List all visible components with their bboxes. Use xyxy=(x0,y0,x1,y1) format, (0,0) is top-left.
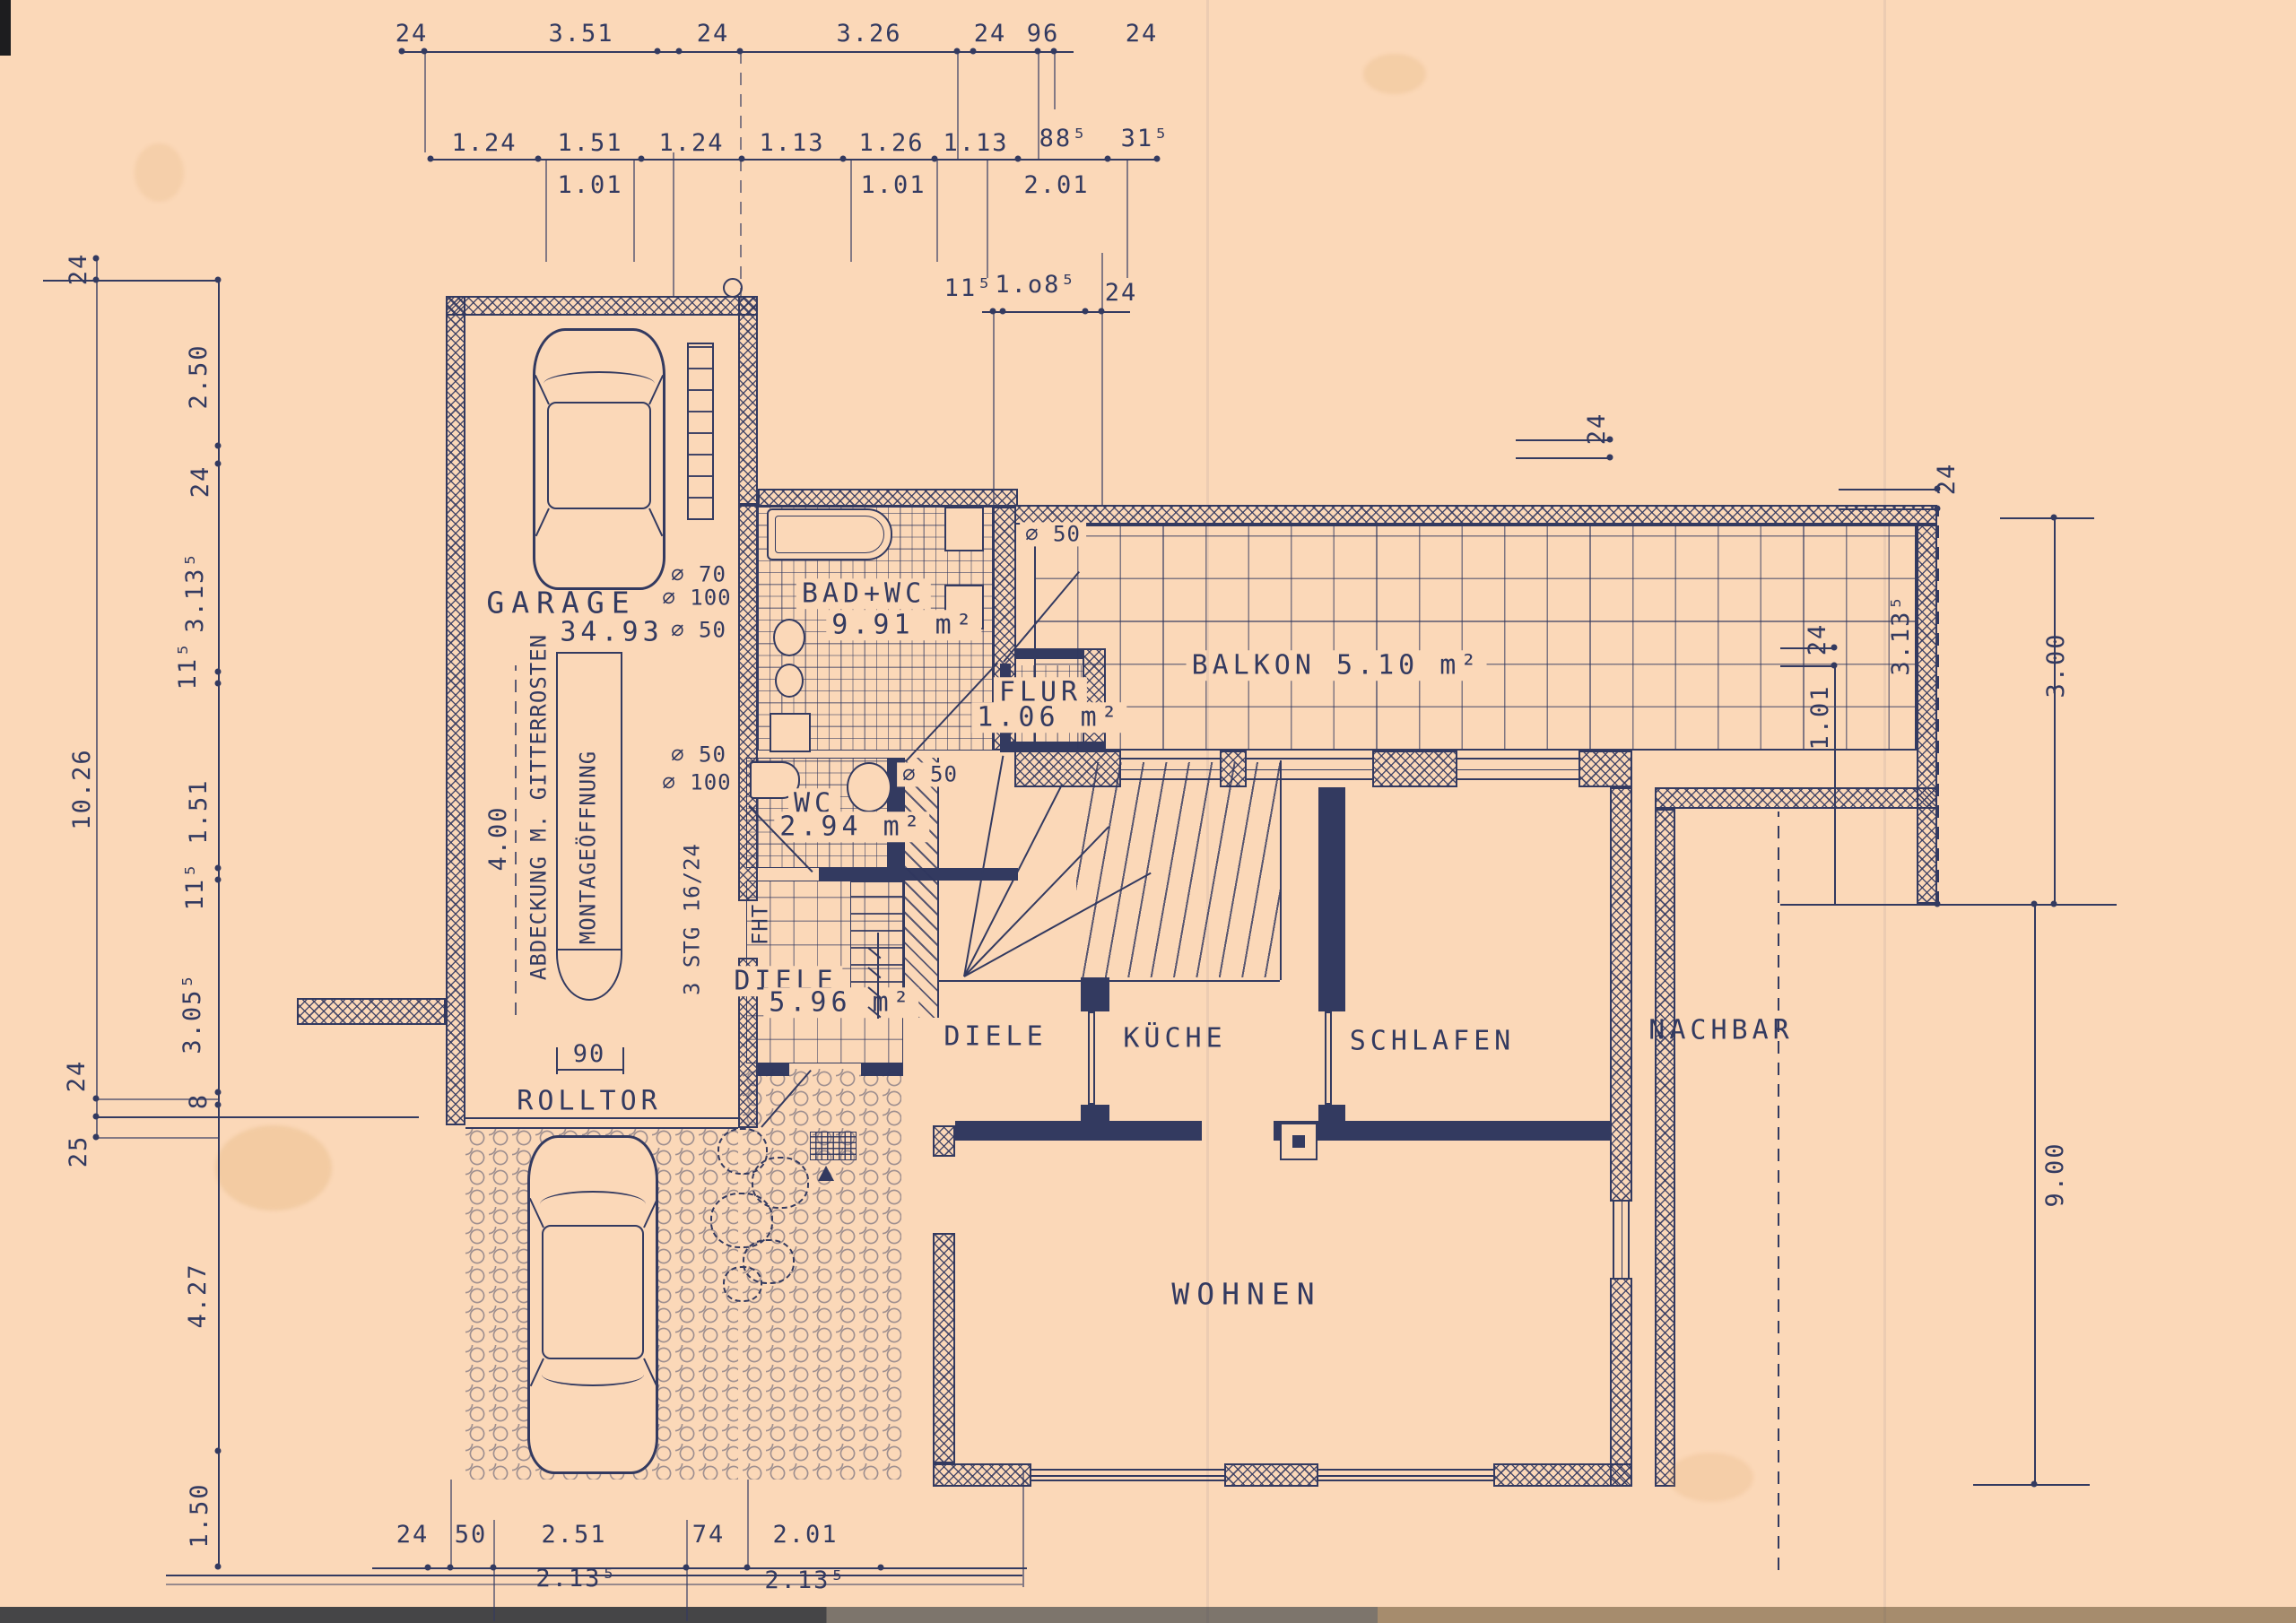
dim-label: 1.26 xyxy=(858,131,924,156)
dimension-dot xyxy=(1935,506,1941,512)
scan-edge-bottom xyxy=(0,1607,2296,1623)
scan-edge-corner xyxy=(0,0,11,56)
room-label-diele: DIELE xyxy=(944,1022,1047,1051)
toilet xyxy=(773,619,805,656)
dimension-line xyxy=(936,159,938,262)
paper-fold xyxy=(1206,0,1209,1623)
pipe-marker: ⌀ 50 xyxy=(897,762,963,786)
dim-label: 2.13⁵ xyxy=(759,1567,851,1594)
dim-label: 24 xyxy=(974,22,1007,47)
dimension-line xyxy=(1839,508,1937,510)
wc-toilet xyxy=(847,762,891,812)
dimension-line xyxy=(1054,51,1056,109)
dimension-dot xyxy=(215,669,222,675)
room-label-balkon: BALKON 5.10 m² xyxy=(1187,650,1487,681)
dimension-dot xyxy=(737,48,744,55)
car-courtyard-windshield xyxy=(540,1191,646,1218)
nachbar-top-wall xyxy=(1655,787,1937,809)
dimension-line xyxy=(96,1116,419,1118)
dim-label: 1.13 xyxy=(759,131,824,156)
dimension-line xyxy=(740,51,742,300)
dimension-line xyxy=(850,159,852,262)
kueche-schlafen-wall xyxy=(1318,787,1345,1011)
garage-shelf-ladder xyxy=(687,343,714,520)
dim-label: 2.50 xyxy=(187,343,212,409)
rolltor-label: ROLLTOR xyxy=(517,1087,661,1115)
room-area-garage: 34.93 xyxy=(560,618,663,647)
room-area-flur: 1.06 m² xyxy=(971,702,1126,733)
dimension-line xyxy=(1516,439,1610,441)
room-area-wc: 2.94 m² xyxy=(774,811,929,842)
dimension-line xyxy=(987,159,988,278)
dim-label: 3.13⁵ xyxy=(183,551,208,632)
dim-label: 9.00 xyxy=(2043,1141,2068,1207)
house-right-window xyxy=(1613,1202,1630,1278)
dimension-dot xyxy=(215,277,222,283)
dimension-dot xyxy=(2051,901,2057,907)
garage-left-wall xyxy=(446,296,465,1125)
dimension-line xyxy=(372,1567,1027,1569)
dimension-line xyxy=(493,1520,495,1621)
dimension-dot xyxy=(744,1565,751,1571)
wohnen-bottom-pier xyxy=(1224,1463,1318,1487)
pipe-marker: ⌀ 100 xyxy=(662,771,731,794)
wohnen-top-wall xyxy=(1274,1121,1610,1141)
dimension-line xyxy=(96,1098,218,1100)
dimension-line xyxy=(2054,517,2056,905)
dimension-line xyxy=(1038,51,1039,161)
dim-label: 8 xyxy=(187,1093,212,1109)
dimension-line xyxy=(166,1575,1022,1576)
dimension-dot xyxy=(970,48,977,55)
dimension-line xyxy=(686,1520,688,1621)
dimension-line xyxy=(1780,904,2117,906)
dim-label: 3.00 xyxy=(2044,632,2069,698)
dimension-line xyxy=(96,1137,218,1139)
dimension-dot xyxy=(215,1564,222,1570)
shrub xyxy=(723,1266,762,1302)
house-right-wall-upper xyxy=(1610,787,1632,1202)
schlafen-window xyxy=(1457,758,1578,780)
montage-label: MONTAGEÖFFNUNG xyxy=(577,751,599,944)
dim-label: 3.05⁵ xyxy=(180,972,205,1054)
montage-opening-end xyxy=(556,949,622,1001)
dim-label: 24 xyxy=(697,22,730,47)
room-label-kueche: KÜCHE xyxy=(1123,1024,1226,1053)
dimension-dot xyxy=(1105,156,1111,162)
dimension-line xyxy=(96,258,98,1139)
dim-label: 11⁵ xyxy=(183,862,208,911)
dimension-dot xyxy=(1000,308,1006,315)
entrance-arrow-icon xyxy=(818,1166,834,1181)
rolltor-line xyxy=(465,1127,738,1129)
car-courtyard-cabin xyxy=(542,1225,644,1359)
pipe-marker: ⌀ 50 xyxy=(671,619,726,641)
chimney-flue xyxy=(1292,1135,1305,1148)
dimension-dot xyxy=(535,156,542,162)
room-label-badwc: BAD+WC xyxy=(796,578,931,609)
front-wall-pier xyxy=(1578,751,1632,787)
dimension-dot xyxy=(990,308,996,315)
pipe-marker: ⌀ 50 xyxy=(671,743,726,766)
dim-label: 1.24 xyxy=(451,131,517,156)
dim-label: 31⁵ xyxy=(1121,126,1170,152)
dim-label: 24 xyxy=(188,465,213,499)
dimension-dot xyxy=(1154,156,1161,162)
dimension-line xyxy=(633,159,635,262)
dimension-line xyxy=(2000,517,2094,519)
diele-kueche-wall xyxy=(1081,977,1109,1011)
dim-label: 1.01 xyxy=(1808,684,1833,750)
dimension-line xyxy=(218,280,220,1567)
kueche-schlafen-door xyxy=(1325,1011,1332,1105)
dimension-line xyxy=(556,1047,558,1074)
dimension-dot xyxy=(2031,901,2038,907)
dim-label: 24 xyxy=(396,1523,430,1548)
dimension-line xyxy=(1780,647,1834,649)
dim-label: 1.13 xyxy=(943,131,1008,156)
dimension-dot xyxy=(215,1448,222,1454)
dimension-line xyxy=(1937,508,1939,904)
paper-stain xyxy=(135,143,184,202)
dimension-line xyxy=(1516,457,1610,459)
dimension-dot xyxy=(93,1114,100,1120)
dimension-dot xyxy=(2051,515,2057,521)
abdeckung-label: ABDECKUNG M. GITTERROSTEN xyxy=(527,634,550,980)
stairwell-wall-line xyxy=(1280,760,1282,980)
dimension-line xyxy=(1101,253,1103,312)
fht-label: FHT xyxy=(749,904,771,945)
diele-kueche-wall xyxy=(1081,1105,1109,1121)
dimension-dot xyxy=(683,1565,690,1571)
front-wall-pier xyxy=(1372,751,1457,787)
dimension-dot xyxy=(840,156,847,162)
dimension-line xyxy=(1839,489,1937,490)
dimension-dot xyxy=(422,48,428,55)
pipe-marker: ⌀ 50 xyxy=(1020,522,1086,546)
dim-label: 24 xyxy=(396,22,429,47)
dimension-dot xyxy=(428,156,434,162)
dim-label: 24 xyxy=(1126,22,1159,47)
dimension-line xyxy=(43,280,219,282)
dim-label: 3.51 xyxy=(548,22,613,47)
floorplan-scan: 24 3.51 24 3.26 24 96 24 1.24 1.51 1.24 … xyxy=(0,0,2296,1623)
dimension-dot xyxy=(448,1565,454,1571)
dim-label: 74 xyxy=(692,1523,726,1548)
dimension-dot xyxy=(491,1565,497,1571)
dimension-dot xyxy=(954,48,961,55)
house-right-wall-lower xyxy=(1610,1278,1632,1487)
dimension-line xyxy=(1778,811,1779,1570)
dimension-dot xyxy=(2031,1481,2038,1488)
dimension-dot xyxy=(215,1089,222,1096)
dim-label: 11⁵ xyxy=(944,276,994,301)
dimension-line xyxy=(2034,904,2036,1485)
dimension-dot xyxy=(655,48,661,55)
bidet xyxy=(775,664,804,698)
car-garage-windshield xyxy=(544,371,655,396)
paper-fold xyxy=(1883,0,1886,1623)
wohnen-bottom-pier xyxy=(1493,1463,1632,1487)
paper-stain xyxy=(1363,54,1426,94)
sink xyxy=(944,507,984,551)
dim-label: 3.26 xyxy=(836,22,901,47)
dimension-dot xyxy=(1015,156,1022,162)
dimension-dot xyxy=(93,1096,100,1102)
dim-label: 90 xyxy=(573,1042,606,1067)
dimension-dot xyxy=(215,681,222,687)
dimension-dot xyxy=(215,461,222,467)
treppe-label: 3 STG 16/24 xyxy=(681,843,703,995)
dimension-dot xyxy=(1607,437,1613,443)
dimension-line xyxy=(1834,665,1836,905)
dimension-line xyxy=(424,51,426,152)
dimension-line xyxy=(957,51,959,161)
dim-label: 4.00 xyxy=(486,805,511,871)
dim-label: 24 xyxy=(1105,281,1138,306)
balcony-top-wall xyxy=(1014,505,1937,525)
doormat xyxy=(810,1132,857,1160)
dimension-dot xyxy=(1607,455,1613,461)
balcony-floor-grid xyxy=(1034,525,1917,751)
dim-label: 88⁵ xyxy=(1039,126,1089,152)
balcony-right-wall xyxy=(1917,525,1937,904)
paper-stain xyxy=(215,1125,332,1211)
dimension-line xyxy=(1101,311,1103,507)
pipe-marker: ⌀ 100 xyxy=(662,586,731,609)
stair-main-flight xyxy=(1076,762,1280,977)
dimension-line xyxy=(545,159,547,262)
dim-label: 25 xyxy=(66,1135,91,1168)
dimension-dot xyxy=(1051,48,1057,55)
dim-label: 50 xyxy=(455,1523,488,1548)
nachbar-left-wall xyxy=(1655,809,1675,1487)
pipe-marker: ⌀ 70 xyxy=(671,563,726,586)
dimension-dot xyxy=(1831,663,1838,669)
dimension-dot xyxy=(215,443,222,449)
dim-label: 1.51 xyxy=(557,131,622,156)
dimension-dot xyxy=(878,1565,884,1571)
shower-tray xyxy=(770,713,811,752)
dimension-dot xyxy=(93,256,100,262)
car-garage-cabin xyxy=(547,402,651,509)
dimension-dot xyxy=(93,277,100,283)
kueche-schlafen-wall xyxy=(1318,1105,1345,1121)
dim-label: 96 xyxy=(1027,22,1060,47)
dimension-line xyxy=(450,1480,452,1569)
dimension-dot xyxy=(1935,486,1941,492)
wohnen-top-wall xyxy=(955,1121,1202,1141)
dim-label: 1.50 xyxy=(187,1482,213,1548)
garage-right-wall-upper xyxy=(738,296,758,505)
dimension-line xyxy=(673,152,674,298)
dim-label: 3.13⁵ xyxy=(1889,594,1914,675)
dimension-dot xyxy=(639,156,645,162)
room-label-garage: GARAGE xyxy=(486,588,636,620)
room-label-nachbar: NACHBAR xyxy=(1648,1016,1793,1045)
dimension-dot xyxy=(399,48,405,55)
rolltor-line xyxy=(465,1117,738,1119)
dimension-line xyxy=(1022,1471,1024,1587)
dim-label: 2.01 xyxy=(1023,173,1089,198)
dimension-line xyxy=(747,1480,749,1569)
paper-stain xyxy=(1668,1453,1753,1502)
dimension-dot xyxy=(1083,308,1089,315)
room-area-badwc: 9.91 m² xyxy=(826,610,981,640)
dim-label: 1.24 xyxy=(658,131,724,156)
dim-label: 1.o8⁵ xyxy=(995,273,1076,298)
dimension-line xyxy=(1780,665,1834,667)
dimension-dot xyxy=(932,156,938,162)
dimension-dot xyxy=(93,1134,100,1141)
dim-label: 10.26 xyxy=(70,748,95,829)
dim-label: 24 xyxy=(65,1060,90,1093)
dimension-line xyxy=(556,1069,622,1071)
dimension-dot xyxy=(215,877,222,883)
room-area-diele-hall: 5.96 m² xyxy=(763,987,918,1018)
dimension-dot xyxy=(1099,308,1105,315)
dim-label: 11⁵ xyxy=(176,641,201,690)
bathtub-inner xyxy=(775,516,884,553)
dim-label: 1.51 xyxy=(187,778,212,844)
room-label-wohnen: WOHNEN xyxy=(1171,1280,1321,1311)
dim-label: 2.13⁵ xyxy=(530,1566,622,1593)
dimension-dot xyxy=(1935,901,1941,907)
dimension-dot xyxy=(739,156,745,162)
room-label-schlafen: SCHLAFEN xyxy=(1350,1027,1516,1055)
site-boundary-wall xyxy=(297,998,446,1025)
dimension-dot xyxy=(215,865,222,872)
dimension-dot xyxy=(676,48,683,55)
wohnen-left-wall-lower xyxy=(933,1233,955,1463)
dimension-line xyxy=(166,1584,1022,1585)
dimension-line xyxy=(1126,159,1128,278)
dimension-dot xyxy=(1831,645,1838,651)
dimension-dot xyxy=(215,1102,222,1108)
stair-flight-strip xyxy=(903,758,939,1018)
garage-top-wall xyxy=(446,296,758,316)
car-courtyard-rear-window xyxy=(542,1363,644,1386)
dimension-line xyxy=(993,311,995,507)
dim-label: 2.51 xyxy=(541,1523,606,1548)
bath-top-wall xyxy=(758,489,1018,507)
dim-label: 24 xyxy=(1805,623,1831,656)
wohnen-window-right xyxy=(1318,1469,1493,1481)
dimension-line xyxy=(622,1047,624,1074)
dim-label: 1.01 xyxy=(557,173,622,198)
dim-label: 2.01 xyxy=(772,1523,838,1548)
dim-label: 4.27 xyxy=(186,1263,211,1328)
wohnen-window-left xyxy=(1031,1469,1224,1481)
dimension-line xyxy=(515,665,517,1015)
diele-kueche-door xyxy=(1088,1011,1095,1105)
dim-label: 1.01 xyxy=(860,173,926,198)
dimension-dot xyxy=(425,1565,431,1571)
dimension-dot xyxy=(1035,48,1041,55)
wohnen-left-wall-upper xyxy=(933,1125,955,1157)
wohnen-bottom-pier xyxy=(933,1463,1031,1487)
